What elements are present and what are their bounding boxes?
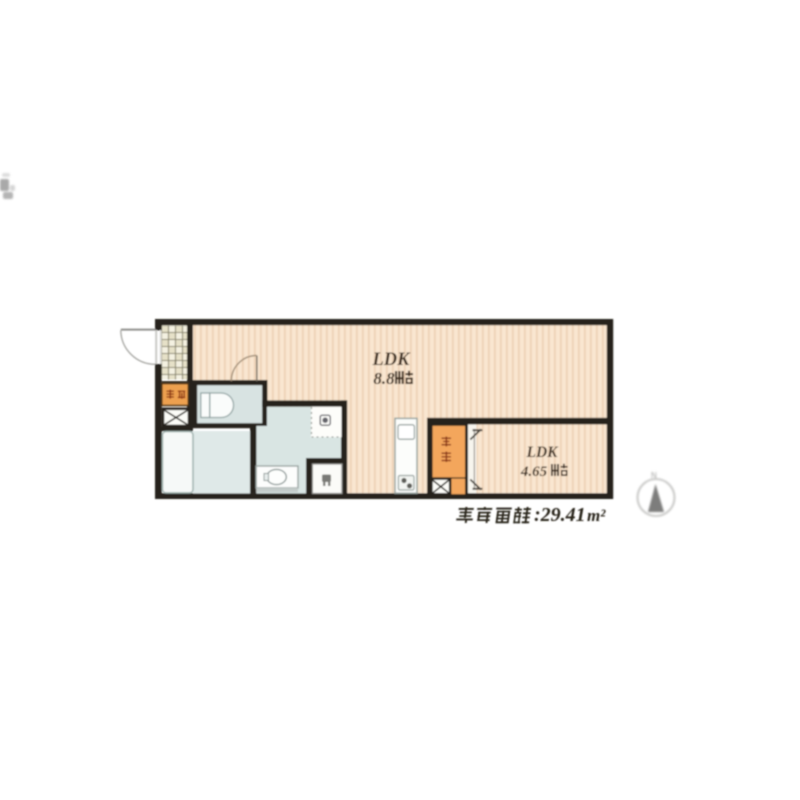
svg-text:N: N <box>651 471 657 480</box>
svg-text:m²: m² <box>587 506 606 525</box>
svg-text:LDK: LDK <box>526 444 560 461</box>
svg-text:LDK: LDK <box>372 350 412 370</box>
svg-text::29.41: :29.41 <box>534 504 586 526</box>
svg-text:4.65: 4.65 <box>520 464 548 480</box>
svg-text:8.8: 8.8 <box>373 369 395 388</box>
